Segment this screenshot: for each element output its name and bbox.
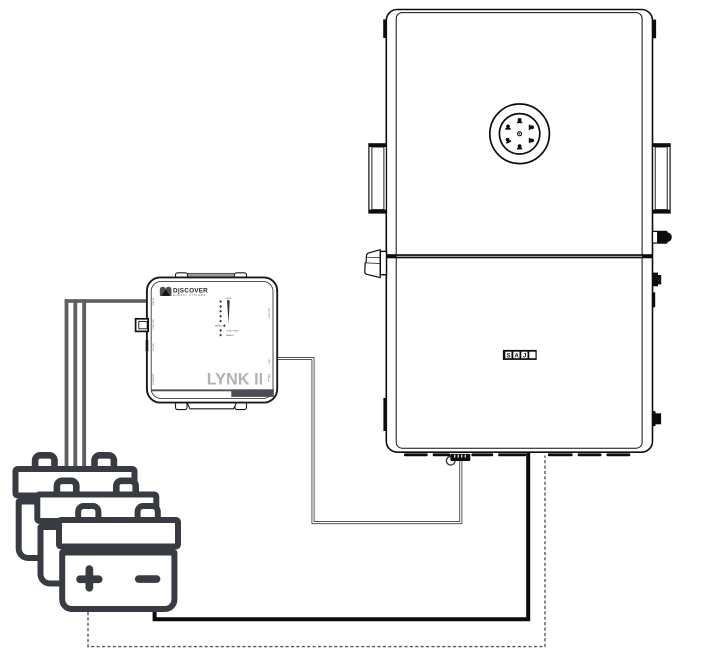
- svg-text:LYNK OUT: LYNK OUT: [269, 307, 271, 318]
- svg-text:LYNK: LYNK: [226, 298, 232, 300]
- svg-text:A: A: [514, 353, 519, 360]
- svg-text:J: J: [523, 353, 527, 360]
- svg-text:LYNK OUT: LYNK OUT: [153, 319, 155, 330]
- svg-text:RS-485: RS-485: [153, 343, 155, 351]
- svg-text:ETHERNET: ETHERNET: [153, 373, 155, 385]
- svg-text:AEBUS: AEBUS: [226, 334, 234, 337]
- svg-text:S: S: [507, 353, 511, 360]
- svg-text:LYNK II: LYNK II: [207, 370, 264, 388]
- svg-text:ENERGY SYSTEMS: ENERGY SYSTEMS: [173, 293, 205, 297]
- svg-text:LYNK IN: LYNK IN: [153, 298, 155, 306]
- svg-text:USB: USB: [269, 373, 271, 378]
- svg-text:LYNK PORT: LYNK PORT: [226, 330, 239, 332]
- svg-text:USB: USB: [269, 359, 271, 364]
- svg-text:RESET: RESET: [215, 326, 223, 328]
